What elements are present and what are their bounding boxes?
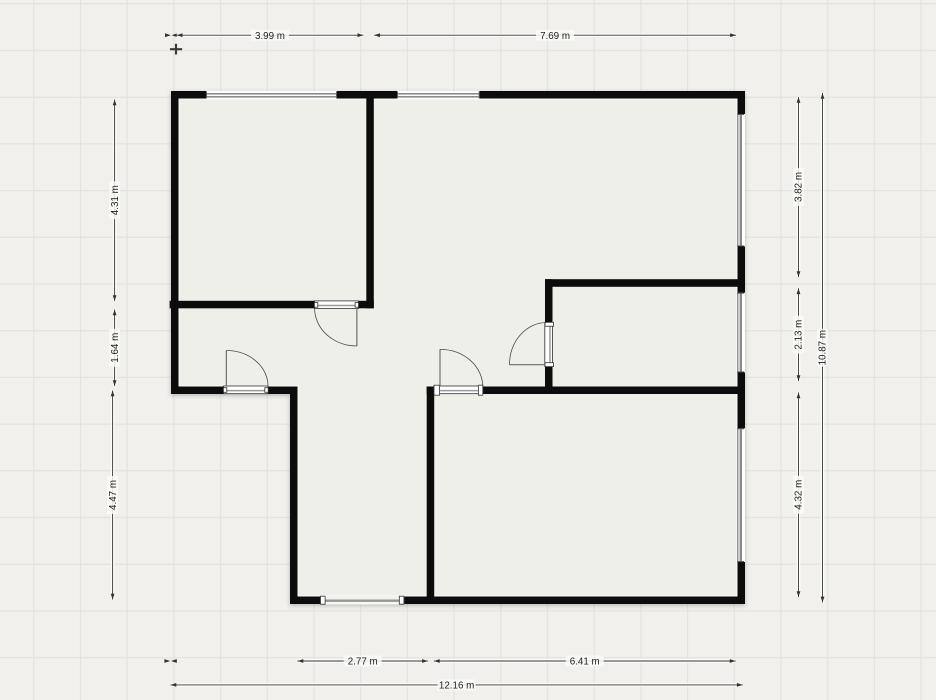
- svg-text:2.77 m: 2.77 m: [348, 657, 378, 668]
- svg-text:12.16 m: 12.16 m: [439, 681, 474, 692]
- svg-text:3.82 m: 3.82 m: [794, 172, 805, 202]
- svg-text:1.64 m: 1.64 m: [110, 333, 121, 363]
- svg-text:3.99 m: 3.99 m: [255, 31, 285, 42]
- svg-text:6.41 m: 6.41 m: [570, 657, 600, 668]
- svg-text:4.47 m: 4.47 m: [108, 480, 119, 510]
- svg-text:7.69 m: 7.69 m: [540, 31, 570, 42]
- svg-text:4.31 m: 4.31 m: [110, 185, 121, 215]
- svg-text:2.13 m: 2.13 m: [794, 320, 805, 350]
- svg-text:10.87 m: 10.87 m: [818, 330, 829, 365]
- svg-text:4.32 m: 4.32 m: [794, 480, 805, 510]
